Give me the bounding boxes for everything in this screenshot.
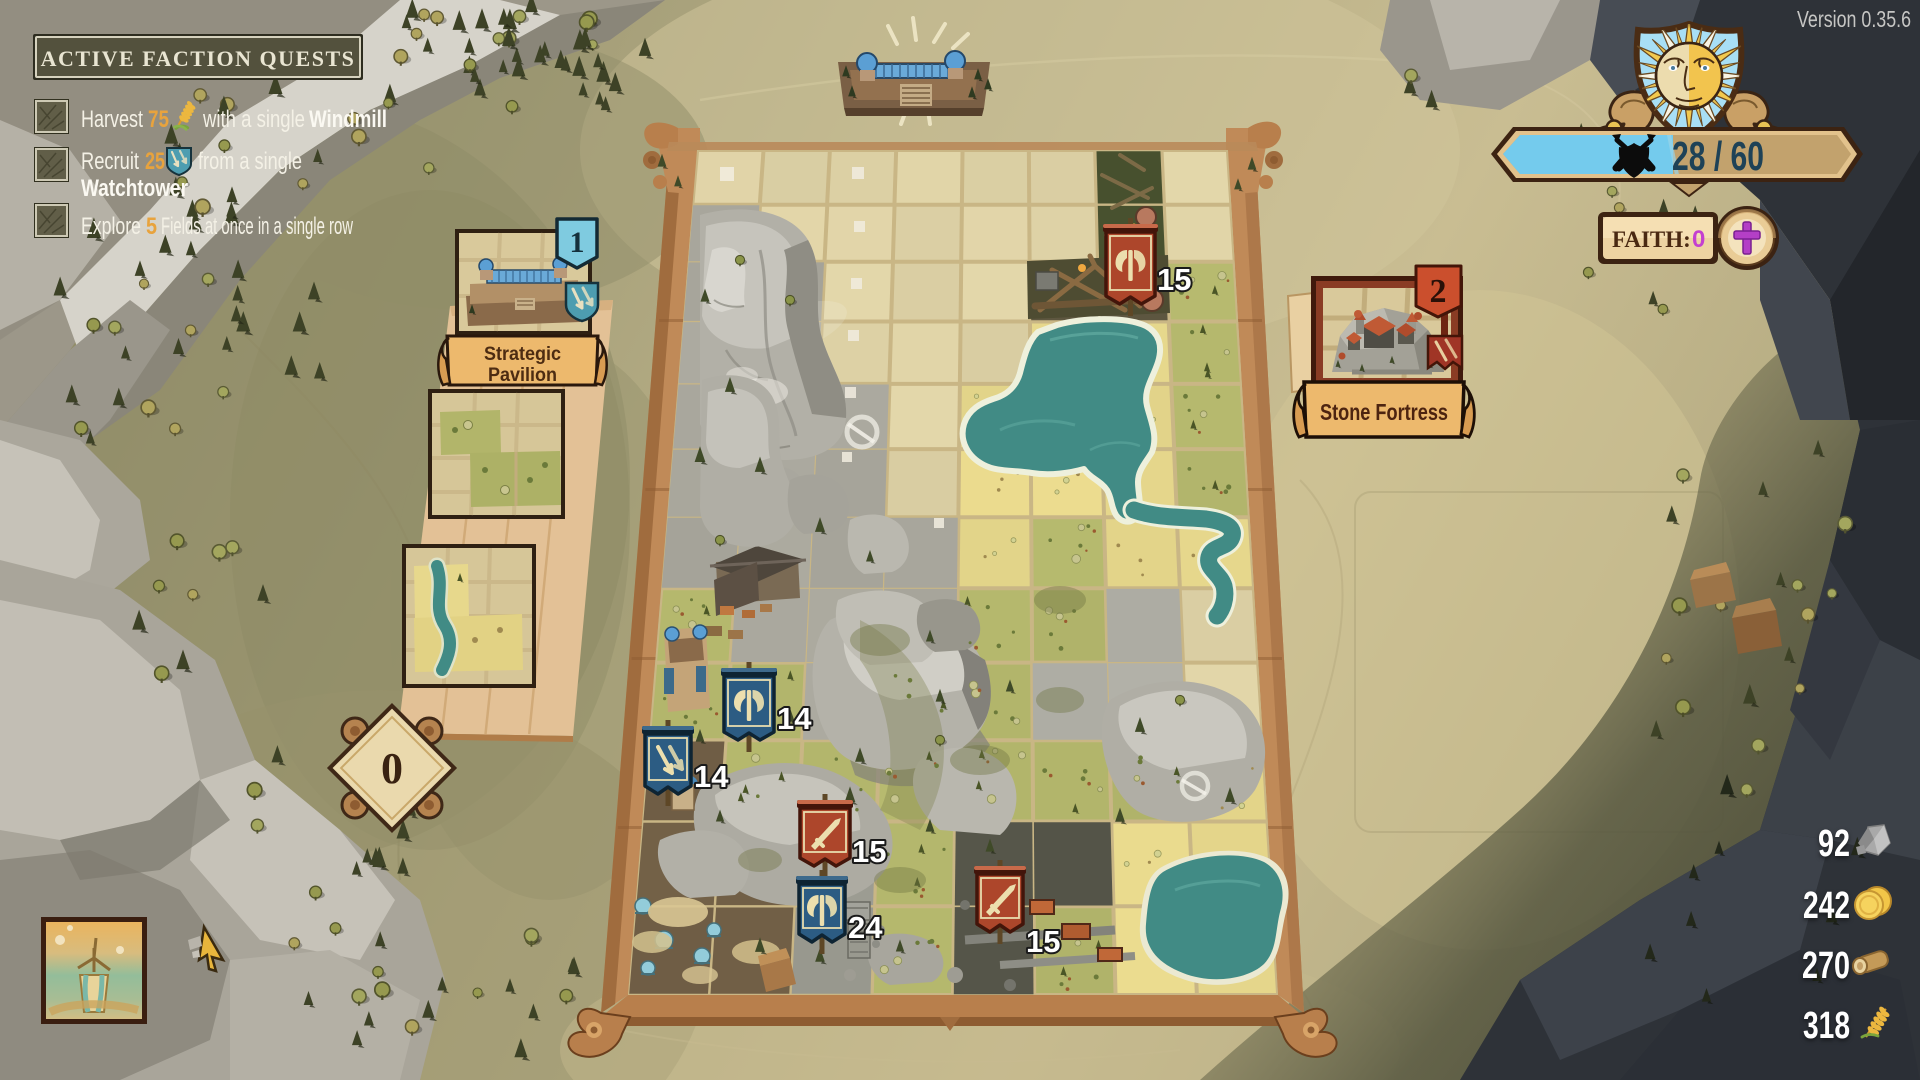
svg-text:Watchtower: Watchtower xyxy=(81,175,188,202)
svg-text:2: 2 xyxy=(1430,273,1447,310)
svg-text:Stone Fortress: Stone Fortress xyxy=(1320,399,1448,425)
svg-text:318: 318 xyxy=(1803,1005,1850,1047)
svg-text:Strategic: Strategic xyxy=(484,344,561,365)
svg-text:270: 270 xyxy=(1802,945,1850,987)
svg-text:Harvest: Harvest xyxy=(81,106,143,133)
svg-text:15: 15 xyxy=(1157,262,1191,297)
svg-text:92: 92 xyxy=(1818,823,1850,865)
svg-text:0: 0 xyxy=(1692,226,1705,253)
svg-text:Fields at once in a single row: Fields at once in a single row xyxy=(161,213,353,240)
svg-text:14: 14 xyxy=(694,759,729,794)
svg-text:0: 0 xyxy=(381,744,403,793)
svg-text:75: 75 xyxy=(148,106,169,133)
svg-text:Explore: Explore xyxy=(81,213,141,240)
svg-text:from a single: from a single xyxy=(198,148,302,175)
svg-text:1: 1 xyxy=(570,226,585,259)
svg-text:Pavilion: Pavilion xyxy=(488,365,557,386)
svg-text:242: 242 xyxy=(1803,885,1850,927)
svg-text:14: 14 xyxy=(777,701,812,736)
svg-text:24: 24 xyxy=(848,910,883,945)
svg-text:15: 15 xyxy=(1026,924,1060,959)
svg-text:Recruit: Recruit xyxy=(81,148,139,175)
svg-text:FAITH:: FAITH: xyxy=(1612,227,1691,252)
svg-text:28 / 60: 28 / 60 xyxy=(1672,133,1764,179)
svg-text:Windmill: Windmill xyxy=(309,106,387,133)
svg-text:Version 0.35.6: Version 0.35.6 xyxy=(1797,6,1911,32)
svg-text:15: 15 xyxy=(852,834,886,869)
svg-text:with a single: with a single xyxy=(202,106,305,133)
svg-text:25: 25 xyxy=(145,148,165,175)
svg-text:5: 5 xyxy=(146,213,157,240)
svg-text:ACTIVE FACTION QUESTS: ACTIVE FACTION QUESTS xyxy=(41,46,356,71)
